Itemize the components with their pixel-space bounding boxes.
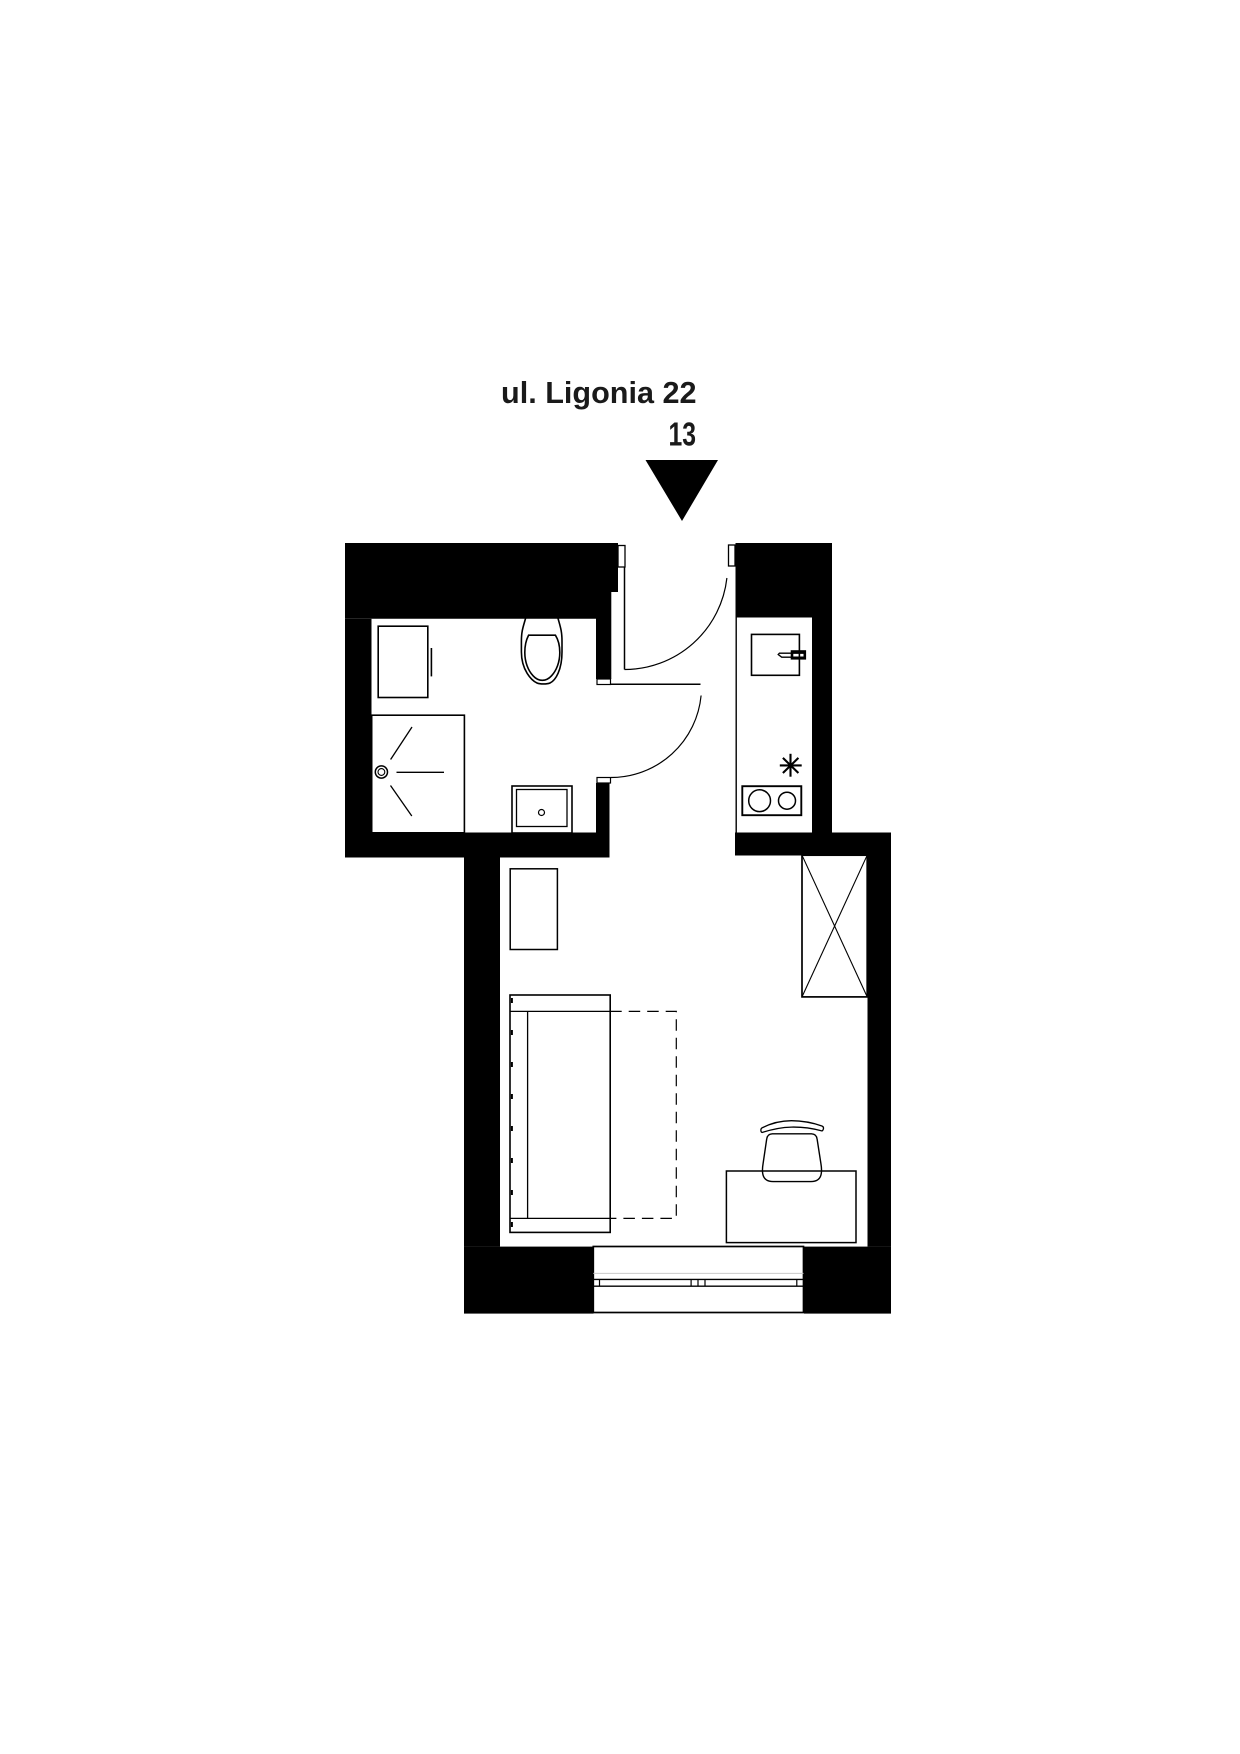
svg-text:13: 13 — [669, 416, 697, 453]
svg-text:ul. Ligonia 22: ul. Ligonia 22 — [501, 375, 697, 410]
